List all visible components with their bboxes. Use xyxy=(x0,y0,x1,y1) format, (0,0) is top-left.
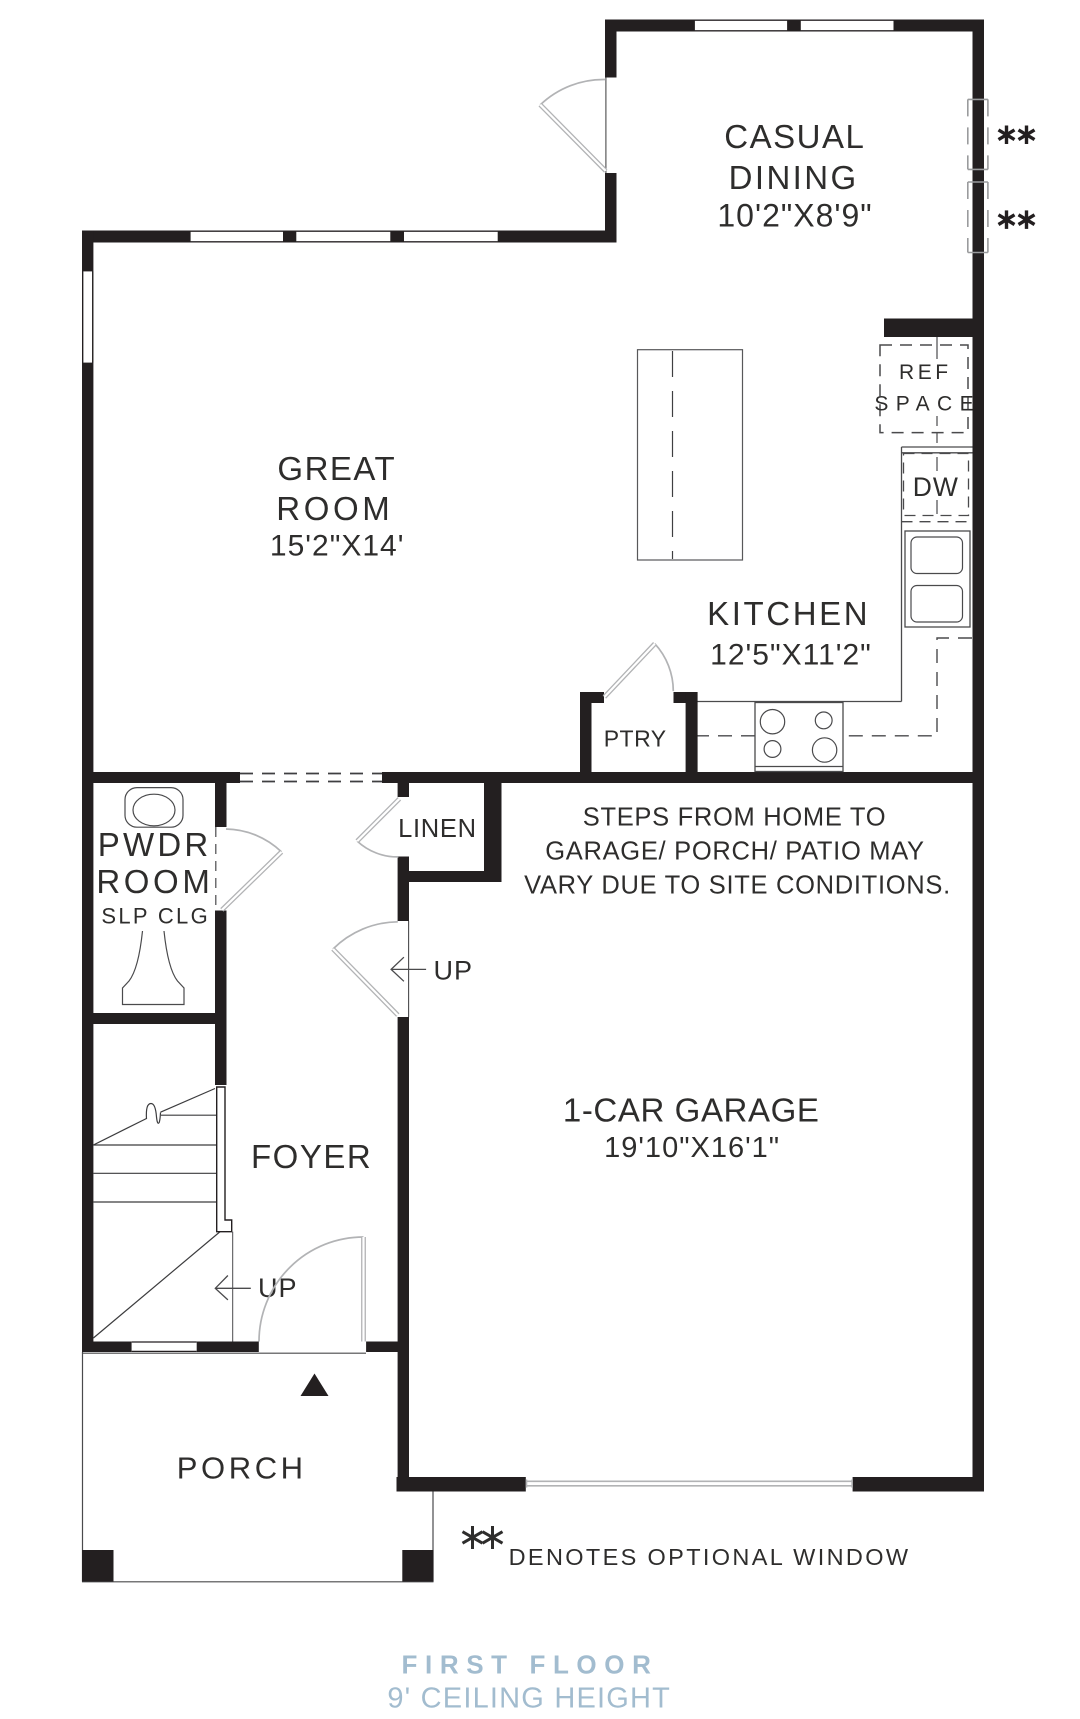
svg-text:UP: UP xyxy=(258,1273,298,1303)
svg-text:10'2"X8'9": 10'2"X8'9" xyxy=(717,198,872,234)
svg-text:STEPS FROM HOME TO: STEPS FROM HOME TO xyxy=(583,803,887,831)
svg-text:KITCHEN: KITCHEN xyxy=(707,595,870,632)
svg-text:ROOM: ROOM xyxy=(276,490,393,527)
svg-text:19'10"X16'1": 19'10"X16'1" xyxy=(604,1132,780,1164)
svg-text:SPACE: SPACE xyxy=(874,392,981,415)
svg-text:GREAT: GREAT xyxy=(277,450,396,487)
svg-text:UP: UP xyxy=(434,956,474,986)
svg-text:FIRST FLOOR: FIRST FLOOR xyxy=(402,1649,659,1679)
svg-text:PORCH: PORCH xyxy=(177,1451,307,1486)
svg-text:15'2"X14': 15'2"X14' xyxy=(270,529,405,562)
svg-text:9' CEILING HEIGHT: 9' CEILING HEIGHT xyxy=(387,1682,671,1714)
svg-text:PWDR: PWDR xyxy=(98,826,212,863)
svg-text:SLP CLG: SLP CLG xyxy=(101,904,210,929)
svg-text:DW: DW xyxy=(913,472,959,502)
svg-text:PTRY: PTRY xyxy=(604,726,667,752)
svg-text:GARAGE/ PORCH/ PATIO MAY: GARAGE/ PORCH/ PATIO MAY xyxy=(545,838,925,866)
svg-text:CASUAL: CASUAL xyxy=(724,118,865,155)
svg-text:REF: REF xyxy=(899,361,952,384)
svg-text:ROOM: ROOM xyxy=(96,863,213,900)
svg-text:LINEN: LINEN xyxy=(398,815,477,843)
svg-text:12'5"X11'2": 12'5"X11'2" xyxy=(710,638,872,671)
svg-text:1-CAR GARAGE: 1-CAR GARAGE xyxy=(563,1092,820,1129)
svg-text:FOYER: FOYER xyxy=(251,1138,372,1175)
svg-text:DENOTES OPTIONAL WINDOW: DENOTES OPTIONAL WINDOW xyxy=(509,1544,911,1570)
svg-text:DINING: DINING xyxy=(729,159,859,196)
svg-text:VARY DUE TO SITE CONDITIONS.: VARY DUE TO SITE CONDITIONS. xyxy=(524,872,951,900)
